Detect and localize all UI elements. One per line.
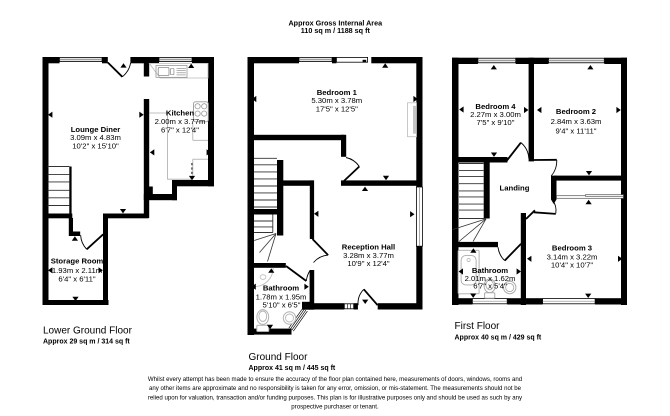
svg-text:Approx 40 sq m / 429 sq ft: Approx 40 sq m / 429 sq ft (455, 334, 542, 341)
svg-text:110 sq m / 1188 sq ft: 110 sq m / 1188 sq ft (301, 26, 371, 35)
svg-text:any other items are approximat: any other items are approximate and no r… (149, 385, 522, 392)
svg-text:relied upon for valuation, tra: relied upon for valuation, transaction a… (148, 394, 523, 401)
svg-text:5'10" x 6'5": 5'10" x 6'5" (263, 301, 301, 310)
svg-text:2.00m x 3.77m: 2.00m x 3.77m (155, 117, 206, 126)
svg-text:10'2" x 15'10": 10'2" x 15'10" (72, 142, 119, 151)
svg-text:Bedroom 3: Bedroom 3 (552, 244, 592, 253)
svg-text:6'4" x 6'11": 6'4" x 6'11" (58, 275, 96, 284)
svg-text:6'7" x 5'4": 6'7" x 5'4" (473, 282, 507, 291)
svg-text:10'4" x 10'7": 10'4" x 10'7" (551, 261, 593, 270)
svg-text:2.84m x 3.63m: 2.84m x 3.63m (551, 117, 602, 126)
svg-text:Ground Floor: Ground Floor (249, 352, 309, 363)
svg-text:10'9" x 12'4": 10'9" x 12'4" (347, 259, 389, 268)
svg-text:9'4" x 11'11": 9'4" x 11'11" (555, 127, 596, 136)
svg-text:6'7" x 12'4": 6'7" x 12'4" (161, 126, 199, 135)
svg-text:Bedroom 2: Bedroom 2 (556, 107, 596, 116)
svg-text:First Floor: First Floor (455, 321, 501, 332)
svg-text:Approx 29 sq m / 314 sq ft: Approx 29 sq m / 314 sq ft (43, 338, 130, 345)
svg-text:Landing: Landing (500, 184, 530, 193)
svg-text:7'5" x 9'10": 7'5" x 9'10" (477, 118, 515, 127)
svg-text:Approx 41 sq m / 445 sq ft: Approx 41 sq m / 445 sq ft (249, 365, 336, 372)
svg-text:1.93m x 2.11m: 1.93m x 2.11m (52, 266, 102, 275)
svg-text:17'5" x 12'5": 17'5" x 12'5" (316, 104, 358, 113)
svg-text:prospective purchaser or tenan: prospective purchaser or tenant. (291, 404, 379, 411)
svg-text:Storage Room: Storage Room (51, 257, 104, 266)
svg-text:Bathroom: Bathroom (263, 284, 299, 293)
svg-text:Whilst every attempt has been: Whilst every attempt has been made to en… (148, 376, 522, 383)
svg-text:Lower Ground Floor: Lower Ground Floor (43, 326, 133, 337)
